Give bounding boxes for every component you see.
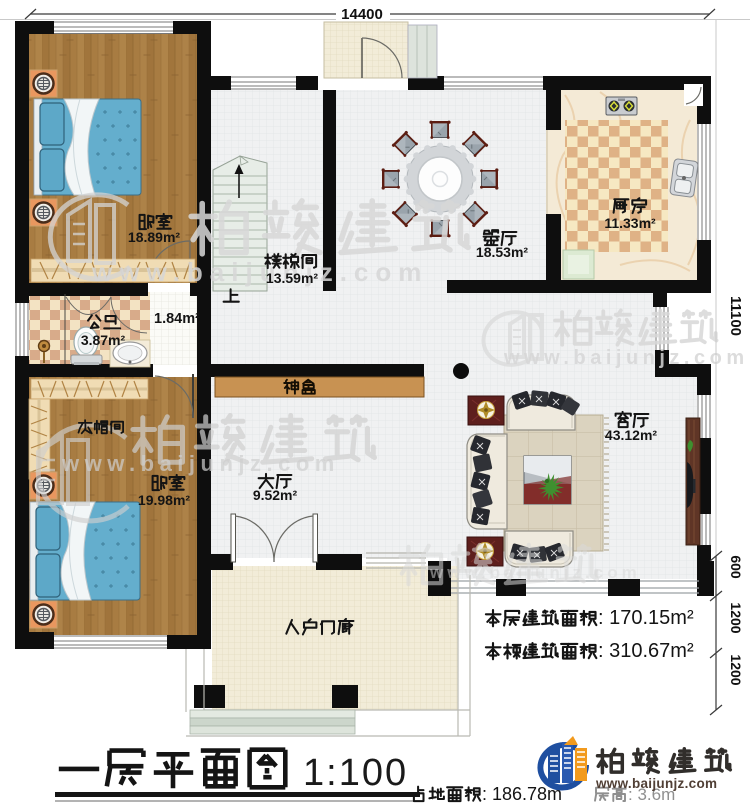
- svg-text:13.59m²: 13.59m²: [266, 270, 318, 286]
- svg-text:19.98m²: 19.98m²: [138, 492, 190, 508]
- svg-text:18.53m²: 18.53m²: [476, 244, 528, 260]
- svg-text:: 186.78m: : 186.78m: [482, 784, 562, 804]
- svg-text:9.52m²: 9.52m²: [253, 487, 298, 503]
- svg-text:www.baijunjz.com: www.baijunjz.com: [595, 776, 717, 791]
- svg-text:43.12m²: 43.12m²: [605, 427, 657, 443]
- svg-text:1:100: 1:100: [303, 752, 408, 794]
- svg-text:www.baijunjz.com: www.baijunjz.com: [61, 451, 340, 476]
- svg-text:3.87m²: 3.87m²: [81, 332, 126, 348]
- svg-text:www.baijunjz.com: www.baijunjz.com: [503, 347, 749, 369]
- svg-text:1.84m²: 1.84m²: [154, 311, 200, 327]
- svg-text:www.baijunjz.com: www.baijunjz.com: [429, 563, 641, 582]
- svg-text:18.89m²: 18.89m²: [128, 229, 180, 245]
- svg-text:14400: 14400: [341, 6, 383, 23]
- svg-text:11100: 11100: [727, 296, 744, 336]
- svg-text:www.baijunjz.com: www.baijunjz.com: [91, 257, 428, 287]
- svg-text:: 170.15m²: : 170.15m²: [598, 607, 694, 629]
- svg-text:1200: 1200: [728, 602, 744, 633]
- svg-text:1200: 1200: [728, 654, 744, 685]
- svg-text:: 310.67m²: : 310.67m²: [598, 640, 694, 662]
- svg-text:11.33m²: 11.33m²: [604, 215, 656, 231]
- svg-text:600: 600: [728, 555, 744, 579]
